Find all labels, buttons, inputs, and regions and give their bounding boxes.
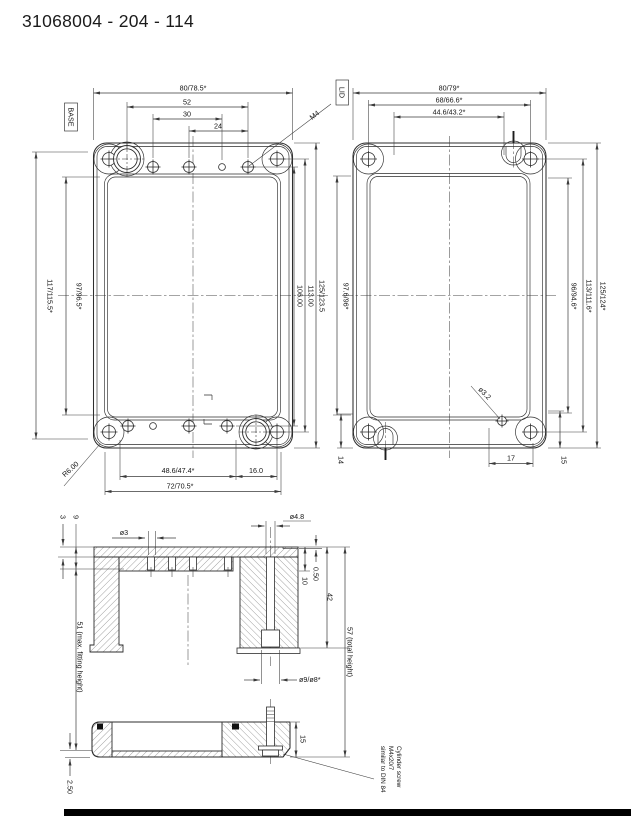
lid-label: LID bbox=[338, 87, 347, 98]
lid-dim-113: 113/111.6* bbox=[585, 279, 594, 312]
lid-dimension-lines bbox=[337, 93, 597, 464]
base-cavity-inner bbox=[108, 177, 278, 417]
base-dim-24: 24 bbox=[214, 122, 222, 131]
bottom-border-bar bbox=[64, 809, 631, 816]
sec-dim-42: 42 bbox=[326, 593, 335, 601]
base-view: BASE bbox=[32, 84, 331, 496]
technical-drawing: 31068004 - 204 - 114 BASE bbox=[0, 0, 631, 817]
base-dim-height-outer: 117/115.5* bbox=[46, 279, 55, 313]
lid-dim-15: 15 bbox=[560, 456, 569, 464]
lid-dim-17: 17 bbox=[507, 454, 515, 463]
base-pcb-holes bbox=[121, 160, 256, 434]
base-dim-113: 113.00 bbox=[307, 285, 316, 306]
base-section-foot bbox=[237, 648, 300, 654]
base-dim-486: 48.6/47.4* bbox=[162, 466, 195, 475]
base-section-top-plate bbox=[94, 547, 298, 557]
sec-dim-050: 0.50 bbox=[312, 567, 321, 581]
lid-dim-68: 68/66.6* bbox=[436, 96, 463, 105]
lid-dim-446: 44.6/43.2* bbox=[433, 108, 466, 117]
base-dim-52: 52 bbox=[183, 98, 191, 107]
section-views: 3 9 ø3 ø4.8 0.50 10 42 51 (max. fitting … bbox=[58, 512, 402, 794]
base-cavity-outer bbox=[105, 174, 281, 420]
base-dim-30: 30 bbox=[183, 110, 191, 119]
datasheet-page: 31068004 - 204 - 114 BASE bbox=[0, 0, 631, 817]
base-dim-106: 106.00 bbox=[296, 285, 305, 307]
sec-dim-dia48: ø4.8 bbox=[290, 512, 304, 521]
sec-dim-total: 57 (total height) bbox=[346, 627, 355, 677]
lid-section bbox=[92, 707, 290, 757]
lid-hole-dia-label: ø3.2 bbox=[476, 385, 493, 402]
lid-dim-125: 125/124* bbox=[599, 282, 608, 311]
lid-dim-width: 80/79* bbox=[439, 84, 460, 93]
lid-section-floor bbox=[112, 751, 222, 757]
lid-cavity-outer bbox=[367, 174, 530, 421]
screw-note-line2: M4x20/7 bbox=[387, 746, 394, 771]
base-section-left-wall bbox=[90, 557, 123, 652]
sec-dim-fitting: 51 (max. fitting height) bbox=[76, 621, 85, 692]
screw-note: Cylinder screw M4x20/7 similar to DIN 84 bbox=[379, 746, 402, 793]
seal-left bbox=[97, 724, 103, 730]
lid-dim-976: 97.6/96* bbox=[342, 283, 351, 310]
lid-centerlines bbox=[342, 136, 556, 458]
sec-dim-dia3: ø3 bbox=[120, 528, 128, 537]
r6-label: R6.00 bbox=[60, 459, 80, 479]
boss-shaft-hole bbox=[267, 557, 275, 630]
sec-dim-15: 15 bbox=[299, 735, 308, 743]
sec-dim-9: 9 bbox=[72, 515, 81, 519]
m4-label: M4 bbox=[308, 108, 321, 121]
seal-right bbox=[232, 724, 239, 730]
drawing-title: 31068004 - 204 - 114 bbox=[22, 11, 194, 31]
sec-dim-3: 3 bbox=[59, 515, 68, 519]
screw-note-line3: similar to DIN 84 bbox=[379, 746, 386, 793]
base-dim-16: 16.0 bbox=[249, 466, 263, 475]
boss-counterbore bbox=[262, 630, 280, 647]
base-interior-marks bbox=[204, 395, 212, 424]
base-dim-height-inner: 97/96.5* bbox=[75, 283, 84, 310]
base-dim-125: 125/123.5 bbox=[318, 280, 327, 312]
base-section bbox=[90, 547, 300, 654]
base-label: BASE bbox=[67, 107, 76, 126]
lid-view: LID bbox=[333, 80, 608, 467]
sec-dim-10: 10 bbox=[301, 577, 310, 585]
lid-dim-14: 14 bbox=[337, 456, 346, 464]
lid-dim-96: 96/94.6* bbox=[570, 283, 579, 310]
base-section-pillar-band bbox=[119, 557, 233, 571]
screw-note-line1: Cylinder screw bbox=[395, 746, 402, 788]
base-dim-72: 72/70.5* bbox=[167, 482, 194, 491]
screw-note-leader bbox=[283, 754, 374, 779]
sec-dim-250: 2.50 bbox=[66, 780, 75, 794]
base-dim-width: 80/78.5* bbox=[180, 84, 207, 93]
lid-cavity-inner bbox=[370, 177, 527, 418]
sec-dim-dia98: ø9/ø8* bbox=[299, 675, 321, 684]
